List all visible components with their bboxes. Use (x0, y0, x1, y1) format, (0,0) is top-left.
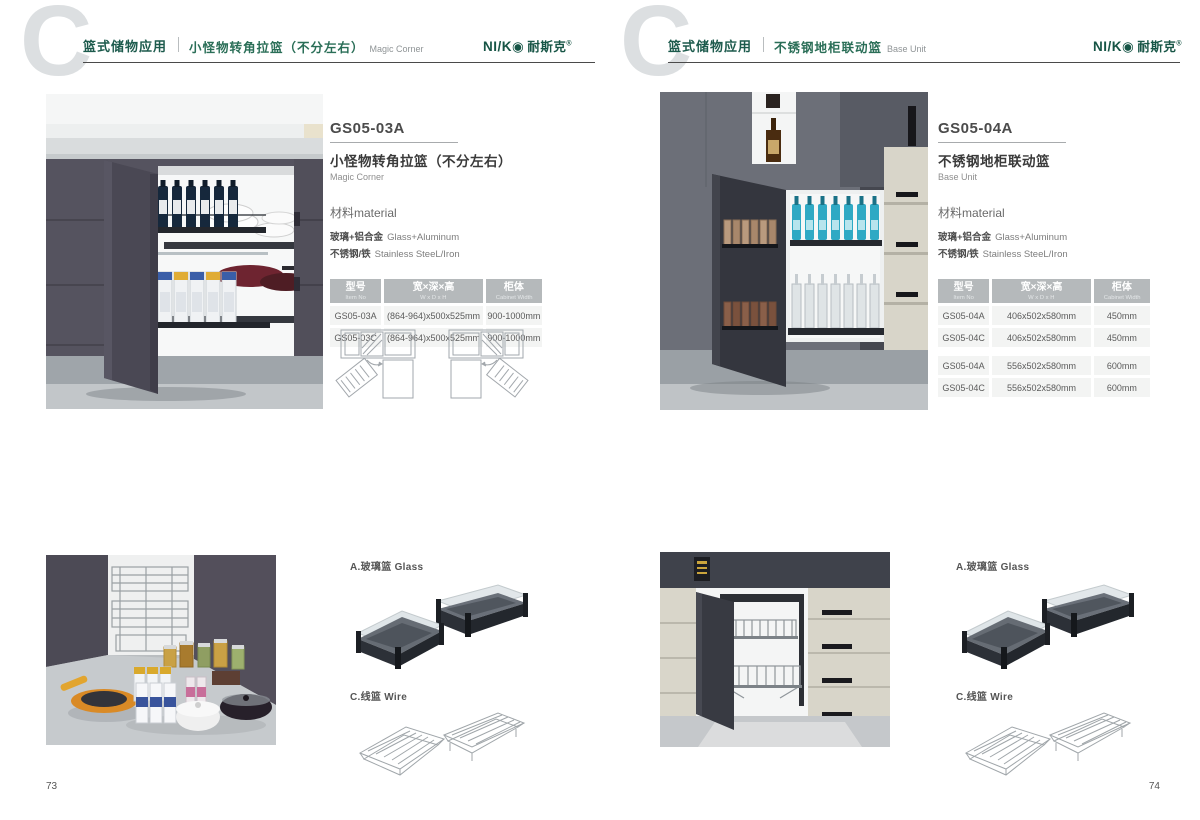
material-lines: 玻璃+铝合金Glass+Aluminum 不锈钢/铁Stainless Stee… (330, 229, 568, 263)
corner-wire-photo-illustration (46, 555, 276, 745)
glass-basket-small (356, 611, 444, 669)
cell-cabinet: 450mm (1094, 306, 1150, 325)
catalog-spread: C 篮式储物应用 小怪物转角拉篮（不分左右）Magic Corner NI/K◉… (0, 0, 1200, 820)
material-heading: 材料material (938, 204, 1176, 221)
brand-logo-mark: NI/K◉ (483, 39, 524, 54)
material-line: 不锈钢/铁Stainless SteeL/Iron (938, 246, 1176, 263)
page-number: 73 (46, 781, 57, 792)
header-rule (668, 62, 1180, 63)
page-header: 篮式储物应用 不锈钢地柜联动篮Base Unit NI/K◉耐斯克® (600, 36, 1200, 58)
material-en: Stainless SteeL/Iron (983, 249, 1068, 260)
brand-logo: NI/K◉耐斯克® (483, 36, 572, 55)
product-photo-base-unit (660, 92, 928, 410)
table-row: GS05-04A 406x502x580mm 450mm (938, 306, 1150, 325)
material-en: Stainless SteeL/Iron (375, 249, 460, 260)
material-en: Glass+Aluminum (995, 232, 1067, 243)
component-legend: A.玻璃篮 Glass (350, 558, 540, 798)
product-name-cn: 不锈钢地柜联动篮 (938, 150, 1176, 170)
product-info: GS05-04A 不锈钢地柜联动篮 Base Unit 材料material 玻… (938, 120, 1176, 397)
product-name-en: Magic Corner (330, 172, 568, 182)
section-title-cn: 小怪物转角拉篮（不分左右） (189, 41, 365, 55)
product-info: GS05-03A 小怪物转角拉篮（不分左右） Magic Corner 材料ma… (330, 120, 568, 347)
header-cell: 宽×深×高W x D x H (992, 279, 1091, 303)
material-heading: 材料material (330, 204, 568, 221)
material-cn: 不锈钢/铁 (938, 249, 979, 260)
cell-size: 556x502x580mm (992, 356, 1091, 375)
wire-basket-image (956, 707, 1146, 788)
header-rule (83, 62, 595, 63)
header-divider (763, 37, 764, 52)
registered-mark-icon: ® (1176, 41, 1182, 48)
base-unit-photo-illustration (660, 92, 928, 410)
spec-table-header: 型号Item No 宽×深×高W x D x H 柜体Cabinet Width (330, 279, 542, 303)
model-number: GS05-03A (330, 120, 568, 137)
table-row: GS05-04A 556x502x580mm 600mm (938, 356, 1150, 375)
section-title: 不锈钢地柜联动篮Base Unit (774, 37, 926, 56)
material-cn: 不锈钢/铁 (330, 249, 371, 260)
product-name-cn: 小怪物转角拉篮（不分左右） (330, 150, 568, 170)
glass-basket-image (350, 577, 540, 674)
material-line: 玻璃+铝合金Glass+Aluminum (330, 229, 568, 246)
model-number: GS05-04A (938, 120, 1176, 137)
glass-basket-small (962, 611, 1050, 669)
model-underline (938, 142, 1066, 143)
page-left: C 篮式储物应用 小怪物转角拉篮（不分左右）Magic Corner NI/K◉… (0, 0, 600, 820)
product-name-en: Base Unit (938, 172, 1176, 182)
model-underline (330, 142, 458, 143)
header-cell: 柜体Cabinet Width (1094, 279, 1150, 303)
header-cell: 柜体Cabinet Width (486, 279, 542, 303)
section-title-en: Base Unit (887, 44, 926, 54)
corner-diagram-left (335, 318, 421, 409)
glass-basket-large (1042, 585, 1134, 637)
category-title: 篮式储物应用 (83, 36, 167, 55)
lifestyle-photo-corner-wire (46, 555, 276, 745)
cell-model: GS05-04C (938, 378, 989, 397)
material-en: Glass+Aluminum (387, 232, 459, 243)
cell-model: GS05-04A (938, 306, 989, 325)
brand-logo-mark: NI/K◉ (1093, 39, 1134, 54)
brand-logo-cn: 耐斯克 (1137, 40, 1176, 54)
cell-cabinet: 600mm (1094, 356, 1150, 375)
header-divider (178, 37, 179, 52)
cell-cabinet: 600mm (1094, 378, 1150, 397)
component-legend: A.玻璃篮 Glass (956, 558, 1146, 798)
page-right: C 篮式储物应用 不锈钢地柜联动篮Base Unit NI/K◉耐斯克® (600, 0, 1200, 820)
header-cell: 型号Item No (330, 279, 381, 303)
glass-basket-large (436, 585, 528, 637)
page-header: 篮式储物应用 小怪物转角拉篮（不分左右）Magic Corner NI/K◉耐斯… (0, 36, 600, 58)
material-line: 玻璃+铝合金Glass+Aluminum (938, 229, 1176, 246)
section-title: 小怪物转角拉篮（不分左右）Magic Corner (189, 37, 424, 56)
section-title-en: Magic Corner (370, 44, 424, 54)
material-line: 不锈钢/铁Stainless SteeL/Iron (330, 246, 568, 263)
table-row: GS05-04C 556x502x580mm 600mm (938, 378, 1150, 397)
magic-corner-photo-illustration (46, 94, 323, 409)
base-wire-photo-illustration (660, 552, 890, 747)
glass-basket-label: A.玻璃篮 Glass (350, 558, 540, 573)
glass-basket-image (956, 577, 1146, 674)
cell-cabinet: 450mm (1094, 328, 1150, 347)
table-row: GS05-04C 406x502x580mm 450mm (938, 328, 1150, 347)
material-lines: 玻璃+铝合金Glass+Aluminum 不锈钢/铁Stainless Stee… (938, 229, 1176, 263)
brand-logo-cn: 耐斯克 (527, 40, 566, 54)
page-number: 74 (1149, 781, 1160, 792)
wire-basket-label: C.线篮 Wire (350, 688, 540, 703)
header-cell: 宽×深×高W x D x H (384, 279, 483, 303)
section-title-cn: 不锈钢地柜联动篮 (774, 41, 882, 55)
header-cell: 型号Item No (938, 279, 989, 303)
corner-diagram-right (443, 318, 529, 409)
spec-table-header: 型号Item No 宽×深×高W x D x H 柜体Cabinet Width (938, 279, 1150, 303)
brand-logo: NI/K◉耐斯克® (1093, 36, 1182, 55)
registered-mark-icon: ® (566, 41, 572, 48)
cell-model: GS05-04A (938, 356, 989, 375)
glass-basket-label: A.玻璃篮 Glass (956, 558, 1146, 573)
material-cn: 玻璃+铝合金 (938, 232, 991, 243)
cell-size: 406x502x580mm (992, 306, 1091, 325)
spec-table: 型号Item No 宽×深×高W x D x H 柜体Cabinet Width… (938, 279, 1150, 397)
cell-size: 556x502x580mm (992, 378, 1091, 397)
material-cn: 玻璃+铝合金 (330, 232, 383, 243)
wire-basket-label: C.线篮 Wire (956, 688, 1146, 703)
lifestyle-photo-base-wire (660, 552, 890, 747)
cell-model: GS05-04C (938, 328, 989, 347)
product-photo-magic-corner (46, 94, 323, 409)
cell-size: 406x502x580mm (992, 328, 1091, 347)
wire-basket-image (350, 707, 540, 788)
category-title: 篮式储物应用 (668, 36, 752, 55)
